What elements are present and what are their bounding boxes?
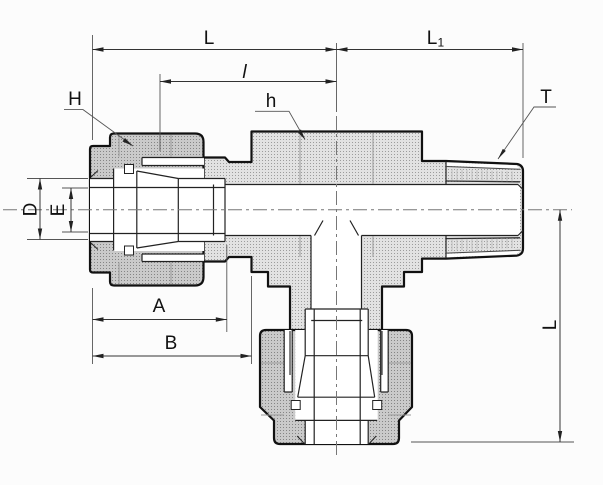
svg-text:l: l	[242, 62, 247, 83]
svg-text:L: L	[204, 28, 215, 49]
svg-text:T: T	[540, 87, 552, 108]
svg-text:B: B	[165, 333, 178, 354]
svg-text:A: A	[153, 296, 166, 317]
svg-text:H: H	[68, 89, 82, 110]
svg-text:1: 1	[438, 36, 445, 50]
svg-text:L: L	[540, 320, 561, 331]
svg-text:h: h	[266, 91, 277, 112]
svg-text:E: E	[48, 204, 69, 217]
svg-text:L: L	[427, 28, 438, 49]
svg-text:D: D	[21, 203, 42, 217]
